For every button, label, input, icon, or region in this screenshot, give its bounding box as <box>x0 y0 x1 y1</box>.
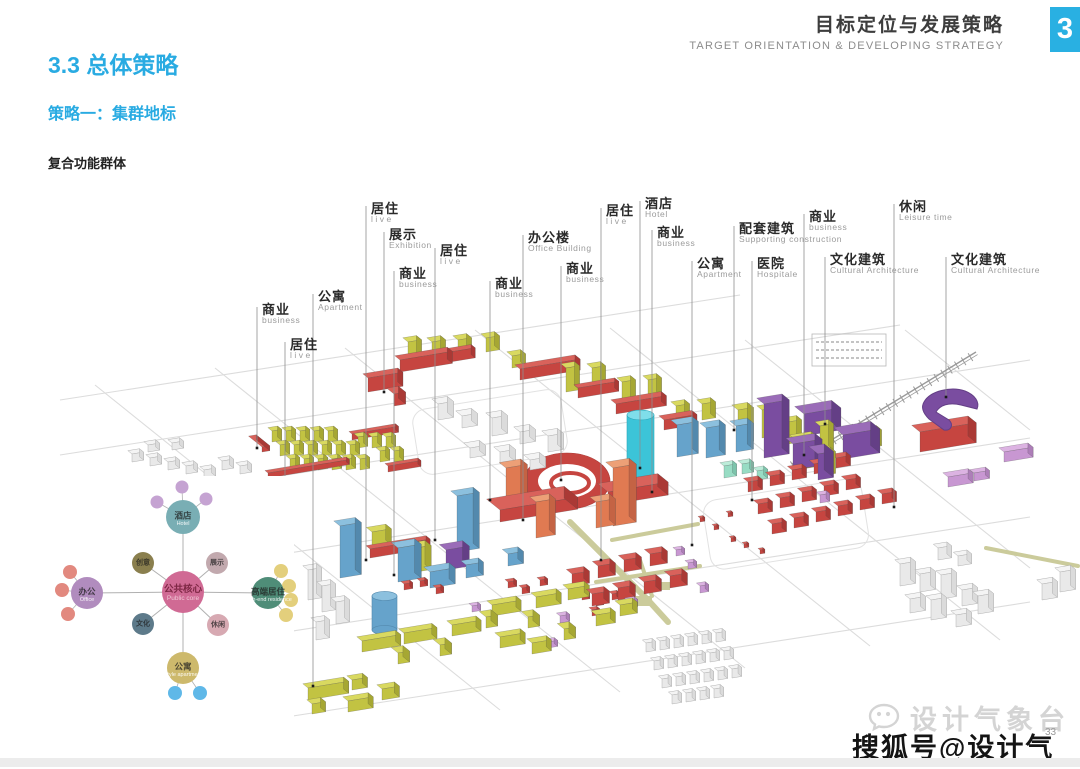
callout-16: 商业business <box>809 210 847 232</box>
callout-5: 商业business <box>399 267 437 289</box>
slide-page: 目标定位与发展策略 TARGET ORIENTATION & DEVELOPIN… <box>0 0 1080 769</box>
svg-text:休闲: 休闲 <box>210 620 225 629</box>
svg-text:办公: 办公 <box>78 587 96 597</box>
bubble-satellite <box>274 564 288 578</box>
svg-text:Hotel: Hotel <box>177 521 190 527</box>
callout-label-en: Supporting construction <box>739 235 842 244</box>
callout-12: 商业business <box>657 226 695 248</box>
callout-1: 公寓Apartment <box>318 290 363 312</box>
svg-text:Office: Office <box>80 597 94 603</box>
callout-label-en: Cultural Architecture <box>830 266 919 275</box>
callout-label-en: Leisure time <box>899 213 953 222</box>
callout-4: 展示Exhibition <box>389 228 432 250</box>
callout-label-en: business <box>399 280 437 289</box>
callout-6: 居住live <box>440 244 468 266</box>
callout-label-en: business <box>495 290 533 299</box>
bubble-satellite <box>168 686 182 700</box>
callout-label-en: Cultural Architecture <box>951 266 1040 275</box>
callout-label-en: Office Building <box>528 244 592 253</box>
callout-label-en: Apartment <box>697 270 742 279</box>
svg-text:展示: 展示 <box>209 558 224 567</box>
callout-18: 休闲Leisure time <box>899 200 953 222</box>
svg-text:创意: 创意 <box>135 558 150 567</box>
callout-10: 居住live <box>606 204 634 226</box>
bubble-satellite <box>176 481 189 494</box>
callout-label-en: Hotel <box>645 210 673 219</box>
callout-label-en: live <box>371 215 399 224</box>
city-model-diagram: 酒店Hotel办公Office高端居住High-end residence公寓S… <box>0 0 1080 769</box>
callout-label-en: Apartment <box>318 303 363 312</box>
callout-3: 居住live <box>371 202 399 224</box>
bubble-satellite <box>200 493 213 506</box>
callout-label-en: business <box>262 316 300 325</box>
svg-text:Style apartment: Style apartment <box>164 672 203 678</box>
callout-2: 居住live <box>290 338 318 360</box>
callout-17: 文化建筑Cultural Architecture <box>830 253 919 275</box>
callout-11: 酒店Hotel <box>645 197 673 219</box>
callout-label-en: live <box>606 217 634 226</box>
callout-13: 公寓Apartment <box>697 257 742 279</box>
callout-19: 文化建筑Cultural Architecture <box>951 253 1040 275</box>
bubble-satellite <box>193 686 207 700</box>
footer-bar <box>0 758 1080 767</box>
callout-label-en: live <box>440 257 468 266</box>
bubble-satellite <box>279 608 293 622</box>
page-number: 33 <box>1045 727 1056 738</box>
callout-label-en: business <box>809 223 847 232</box>
svg-text:酒店: 酒店 <box>174 511 192 521</box>
callout-label-en: Hospitale <box>757 270 798 279</box>
callout-8: 办公楼Office Building <box>528 231 592 253</box>
svg-text:文化: 文化 <box>136 619 150 628</box>
bubble-satellite <box>151 496 164 509</box>
callout-7: 商业business <box>495 277 533 299</box>
svg-text:公共核心: 公共核心 <box>164 583 203 595</box>
callout-label-en: Exhibition <box>389 241 432 250</box>
svg-text:公寓: 公寓 <box>174 662 192 672</box>
bubble-satellite <box>55 583 69 597</box>
callout-label-en: business <box>657 239 695 248</box>
callout-0: 商业business <box>262 303 300 325</box>
callout-label-en: live <box>290 351 318 360</box>
callout-15: 医院Hospitale <box>757 257 798 279</box>
callout-label-en: business <box>566 275 604 284</box>
bubble-satellite <box>63 565 77 579</box>
svg-text:High-end residence: High-end residence <box>244 597 292 603</box>
svg-text:高端居住: 高端居住 <box>251 587 286 597</box>
callout-9: 商业business <box>566 262 604 284</box>
svg-text:Public core: Public core <box>167 595 200 602</box>
bubble-satellite <box>61 607 75 621</box>
function-bubble-diagram: 酒店Hotel办公Office高端居住High-end residence公寓S… <box>38 476 298 722</box>
greenway-mall <box>570 522 1078 622</box>
